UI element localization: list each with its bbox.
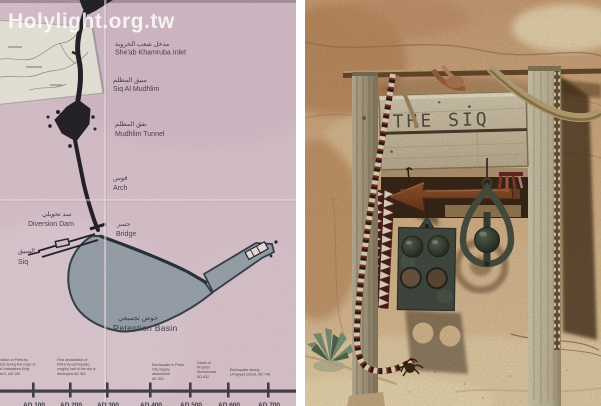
siq-sign-photo: THE SIQ — [305, 0, 601, 406]
collage: مدخل شعب الخروبة She'ab Khamruba Inlet س… — [0, 0, 601, 406]
siq-map-image: مدخل شعب الخروبة She'ab Khamruba Inlet س… — [0, 0, 296, 406]
photo-graphic: THE SIQ — [305, 0, 601, 406]
map-graphic: مدخل شعب الخروبة She'ab Khamruba Inlet س… — [0, 0, 296, 406]
photo-grain — [305, 0, 601, 406]
